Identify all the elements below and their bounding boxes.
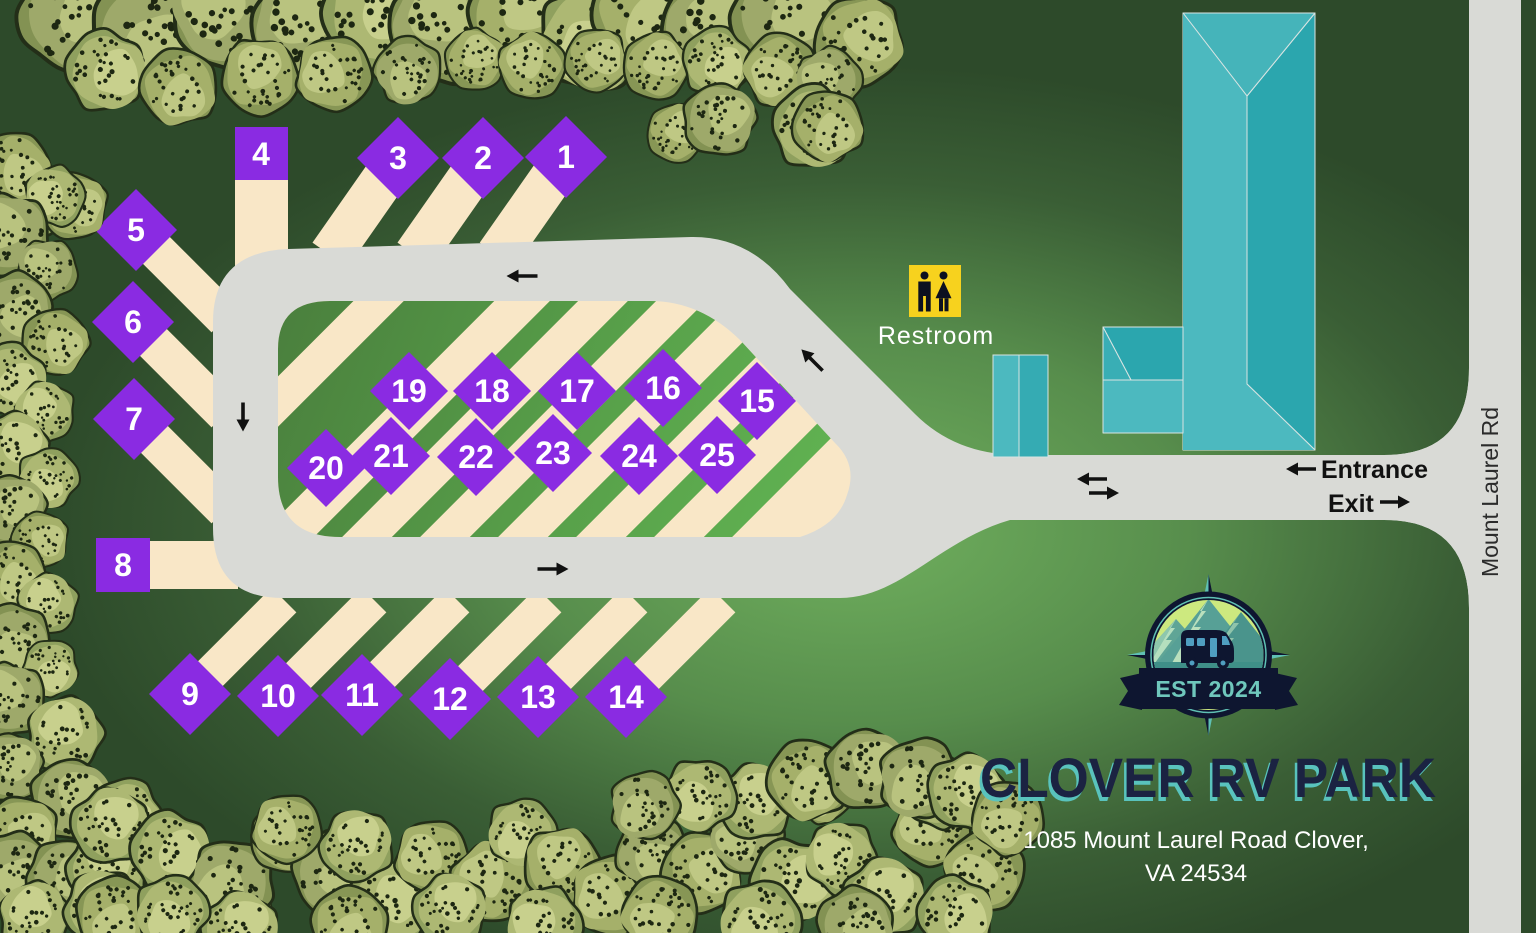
svg-text:12: 12 — [432, 681, 468, 717]
svg-text:14: 14 — [608, 679, 644, 715]
svg-text:9: 9 — [181, 676, 199, 712]
svg-text:20: 20 — [308, 450, 344, 486]
svg-text:16: 16 — [645, 370, 681, 406]
svg-text:VA 24534: VA 24534 — [1145, 860, 1247, 887]
svg-text:23: 23 — [535, 435, 571, 471]
svg-text:18: 18 — [474, 373, 510, 409]
svg-text:Entrance: Entrance — [1321, 456, 1428, 484]
svg-text:22: 22 — [458, 439, 494, 475]
svg-text:CLOVER RV PARK: CLOVER RV PARK — [980, 747, 1436, 809]
svg-text:Exit: Exit — [1328, 490, 1375, 518]
svg-text:7: 7 — [125, 401, 143, 437]
svg-text:2: 2 — [474, 140, 492, 176]
svg-text:Mount Laurel Rd: Mount Laurel Rd — [1477, 407, 1503, 577]
svg-text:15: 15 — [739, 383, 775, 419]
svg-text:25: 25 — [699, 437, 735, 473]
svg-text:13: 13 — [520, 679, 556, 715]
svg-text:EST 2024: EST 2024 — [1155, 676, 1261, 702]
svg-text:10: 10 — [260, 678, 296, 714]
svg-text:3: 3 — [389, 140, 407, 176]
svg-text:21: 21 — [373, 438, 409, 474]
svg-text:Restroom: Restroom — [878, 322, 994, 350]
svg-text:8: 8 — [114, 547, 132, 583]
svg-text:1: 1 — [557, 139, 575, 175]
svg-text:5: 5 — [127, 212, 145, 248]
svg-text:4: 4 — [252, 136, 270, 172]
svg-text:24: 24 — [621, 438, 657, 474]
svg-text:17: 17 — [559, 373, 595, 409]
svg-text:11: 11 — [345, 677, 379, 713]
svg-text:19: 19 — [391, 373, 427, 409]
svg-text:6: 6 — [124, 304, 142, 340]
svg-text:1085 Mount Laurel Road Clover,: 1085 Mount Laurel Road Clover, — [1023, 827, 1369, 854]
